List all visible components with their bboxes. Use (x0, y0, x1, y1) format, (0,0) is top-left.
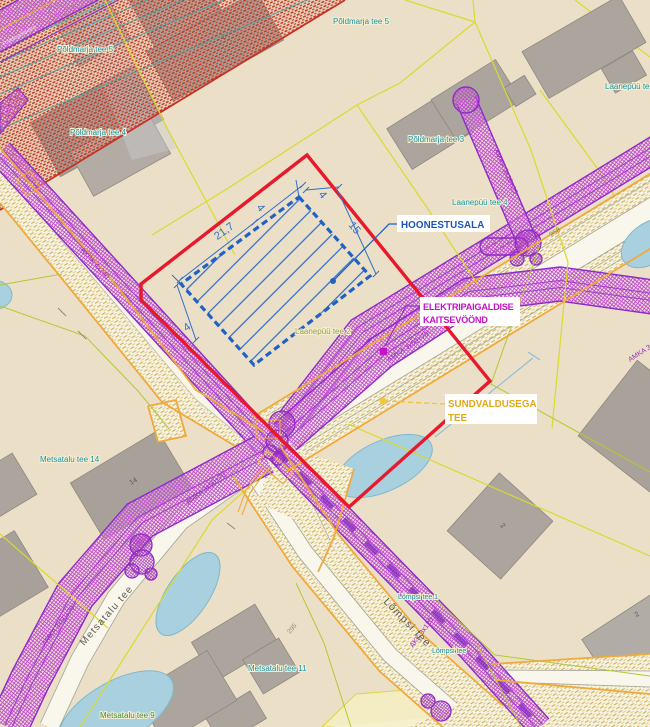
svg-text:Lõmpsi tee 1: Lõmpsi tee 1 (398, 594, 438, 601)
svg-text:Põldmarja tee 4: Põldmarja tee 4 (70, 128, 127, 137)
svg-text:Laanepüü tee: Laanepüü tee (605, 82, 650, 91)
svg-text:ELEKTRIPAIGALDISE: ELEKTRIPAIGALDISE (423, 302, 514, 312)
svg-text:Põldmarja tee 5: Põldmarja tee 5 (57, 45, 114, 54)
svg-text:Metsatalu tee 11: Metsatalu tee 11 (248, 664, 307, 673)
svg-text:TEE: TEE (448, 413, 468, 424)
svg-text:Põldmarja tee 3: Põldmarja tee 3 (408, 135, 465, 144)
svg-text:Metsatalu tee 9: Metsatalu tee 9 (100, 711, 155, 720)
svg-text:Laanepüü tee 2: Laanepüü tee 2 (295, 327, 351, 336)
svg-text:KAITSEVÖÖND: KAITSEVÖÖND (423, 315, 488, 325)
svg-text:Laanepüü tee 4: Laanepüü tee 4 (452, 198, 508, 207)
svg-text:SUNDVALDUSEGA: SUNDVALDUSEGA (448, 399, 537, 410)
svg-text:Põldmarja tee 5: Põldmarja tee 5 (333, 17, 390, 26)
svg-text:HOONESTUSALA: HOONESTUSALA (401, 220, 484, 231)
svg-text:Lõmpsi tee: Lõmpsi tee (432, 648, 466, 655)
svg-text:Metsatalu tee 14: Metsatalu tee 14 (40, 455, 100, 464)
